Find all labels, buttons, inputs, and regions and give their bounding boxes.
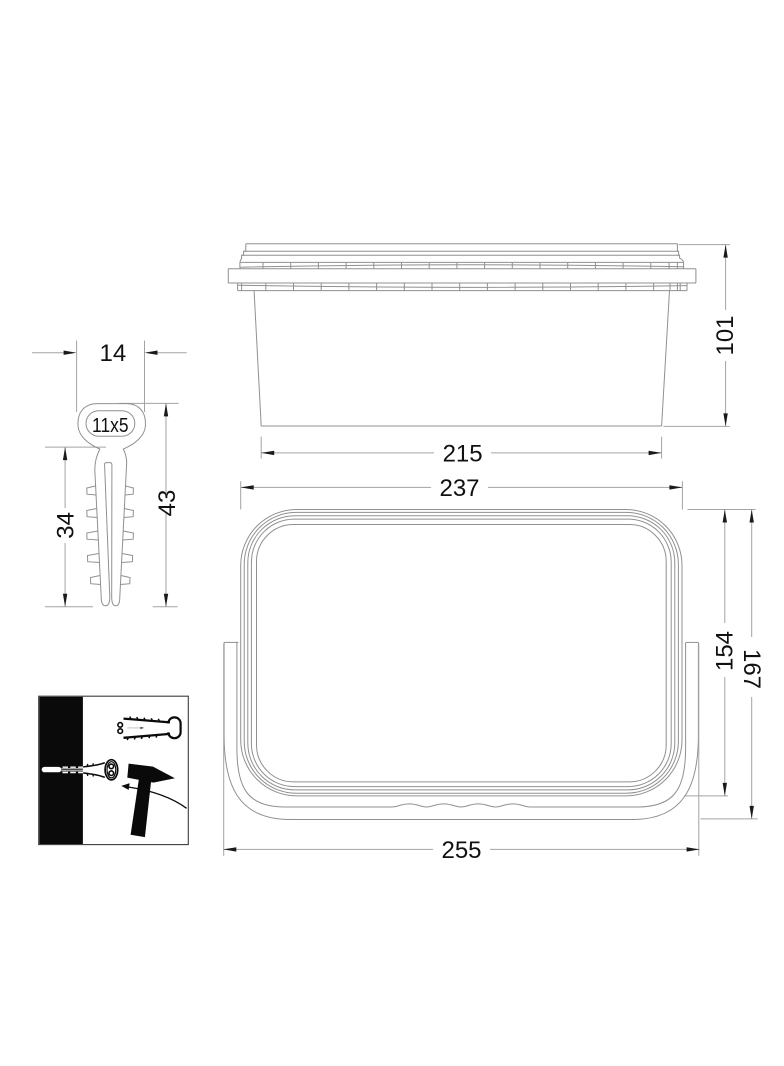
svg-text:255: 255 — [441, 837, 481, 864]
svg-text:154: 154 — [711, 631, 738, 671]
svg-text:14: 14 — [100, 340, 127, 367]
svg-text:167: 167 — [738, 649, 765, 689]
svg-text:101: 101 — [712, 315, 739, 355]
svg-text:237: 237 — [439, 475, 479, 502]
svg-text:11x5: 11x5 — [92, 415, 129, 437]
svg-text:215: 215 — [443, 440, 483, 467]
svg-text:34: 34 — [52, 512, 79, 539]
svg-text:43: 43 — [154, 490, 181, 517]
